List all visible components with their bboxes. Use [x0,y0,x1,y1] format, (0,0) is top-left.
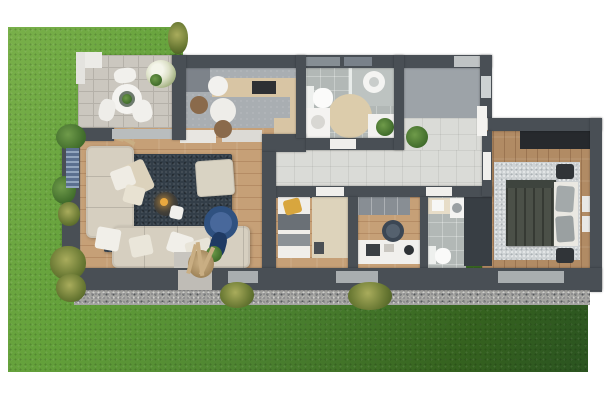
toilet2-bowl [435,248,451,264]
hall-plant [406,126,428,148]
window-bottom-3 [498,271,564,283]
bar-stool [214,120,232,138]
floor-plan-render [0,0,614,400]
bedside-pouf [556,164,574,179]
ottoman [195,159,235,198]
wall-kids-office-divider [348,197,358,270]
bed-pillow [555,215,575,242]
window-top-1 [306,57,340,66]
candle [160,198,168,206]
sofa-pillow [94,226,121,252]
office-wardrobe [358,197,410,215]
wall-kids-left [262,152,276,270]
desk-item [384,244,394,252]
garden-bush [56,274,86,302]
bedroom-wardrobe [520,131,592,149]
radiator [582,216,590,232]
shower-head-inner [369,77,379,87]
wall-bath-right [394,55,404,150]
side-table [169,205,184,220]
garden-bush [348,282,392,310]
bath-plant [376,118,394,136]
kids-blanket [278,214,310,230]
kids-toy [314,242,324,254]
terrace-wall-corner-2 [76,52,85,84]
bedside-pouf [556,248,574,263]
bed-pillow [555,185,575,212]
fridge-block [186,66,210,92]
bath-door-leaf [330,139,356,149]
washing-machine-door [452,203,462,213]
wall-bath-left [296,55,306,138]
entry-door-top [454,56,480,67]
window-top-2 [344,57,372,66]
kids-door-leaf [316,187,344,196]
radiator [582,196,590,212]
background-mask-top-right [490,27,614,118]
bath2-sink [432,200,444,211]
bath-sink [311,115,325,129]
garden-plant [56,124,86,150]
bath2-door-leaf [426,187,452,196]
cooktop [252,81,276,94]
laptop [366,244,380,256]
office-chair-cushion [386,224,400,238]
flower-shrub-green [150,74,162,86]
wall-office-bath2-divider [420,197,428,270]
bar-table [208,76,228,96]
desk-lamp [404,245,414,255]
kids-blanket-2 [278,234,310,246]
gravel-border [74,288,590,305]
wall-hall-south [276,186,492,197]
entry-door-leaf [477,106,487,136]
wall-bedroom-top [488,118,602,131]
terrace-table-plant [122,94,132,104]
garden-bush [220,282,254,308]
window-step [481,76,491,98]
wall-vent-grate [66,148,79,188]
bedroom-door-leaf [483,152,491,180]
bed-duvet [506,180,556,246]
armchair-cushion [210,212,232,234]
bed-duvet-fold [506,180,556,188]
bar-stool [190,96,208,114]
wall-right [590,118,602,292]
bath-rug [328,94,372,138]
garden-plant [58,202,80,226]
garden-bush [168,22,188,54]
window-bottom-1 [228,271,258,283]
utility-shaft-block [464,194,492,266]
terrace-slider-door [112,129,172,139]
